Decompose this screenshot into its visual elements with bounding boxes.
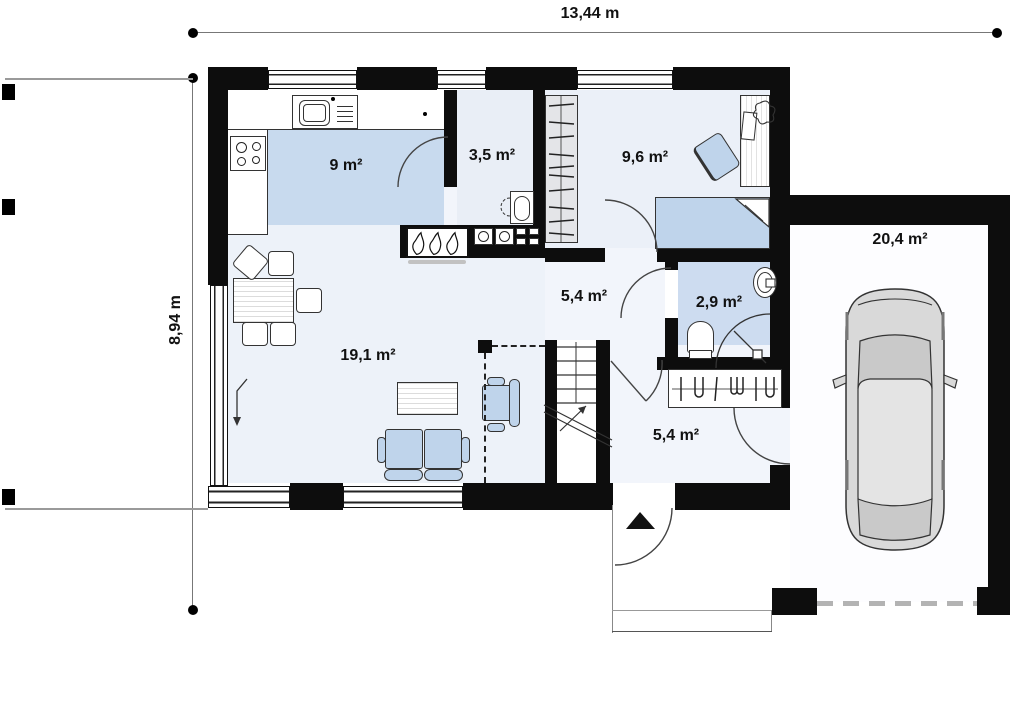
- living-room-window-left: [210, 285, 228, 486]
- sofa-cushion: [385, 429, 423, 469]
- stove-burner: [237, 157, 246, 166]
- sink-bowl-inner: [303, 104, 326, 122]
- dimension-dot: [188, 28, 198, 38]
- wall-segment: [665, 318, 678, 360]
- terrace-post: [2, 199, 15, 215]
- garage-floor: [790, 225, 988, 602]
- stove-burner: [252, 142, 261, 151]
- armchair-back: [509, 379, 520, 427]
- sofa-backrest: [424, 469, 463, 481]
- room-label-bedroom: 9,6 m²: [605, 148, 685, 168]
- room-label-utility: 3,5 m²: [452, 146, 532, 166]
- faucet-dot: [331, 97, 335, 101]
- wall-segment: [290, 483, 343, 510]
- dining-table: [233, 278, 294, 323]
- stove-burner: [252, 156, 260, 164]
- wall-segment: [533, 90, 545, 243]
- wall-segment: [772, 588, 817, 615]
- coffee-table: [397, 382, 458, 415]
- room-label-living-room: 19,1 m²: [328, 346, 408, 366]
- closet: [545, 95, 578, 243]
- dimension-dot: [992, 28, 1002, 38]
- stairs-wall: [596, 340, 610, 483]
- terrace-edge-top: [5, 78, 193, 80]
- armchair-armrest: [487, 423, 505, 432]
- vent-grid: [529, 228, 539, 235]
- floor-plan: 13,44 m 8,94 m: [0, 0, 1024, 717]
- porch-edge-left: [612, 505, 613, 633]
- kitchen-window: [268, 70, 357, 89]
- room-label-hall: 5,4 m²: [544, 287, 624, 307]
- wall-segment: [770, 465, 790, 510]
- dimension-width-label: 13,44 m: [520, 4, 660, 24]
- sink-drainer-line: [337, 106, 353, 107]
- dining-chair: [296, 288, 322, 313]
- sink-drainer-line: [337, 121, 353, 122]
- wall-segment: [444, 90, 457, 187]
- dashed-marker-v: [484, 353, 486, 483]
- wall-segment: [463, 483, 613, 510]
- porch-edge-right: [771, 610, 772, 631]
- terrace-post: [2, 84, 15, 100]
- armchair-seat: [482, 385, 512, 421]
- counter-dot: [423, 112, 427, 116]
- desk-keyboard: [741, 111, 758, 140]
- stairs-floor: [557, 340, 596, 483]
- desk: [740, 95, 770, 187]
- sofa-backrest: [384, 469, 423, 481]
- water-heater-tank: [514, 196, 530, 221]
- sink-drainer-line: [337, 111, 353, 112]
- stove-burner: [236, 142, 247, 153]
- washing-machine-drum: [499, 231, 510, 242]
- room-label-entry: 5,4 m²: [636, 426, 716, 446]
- sink-drainer-line: [337, 116, 353, 117]
- wall-segment: [208, 67, 228, 285]
- washing-machine-drum: [478, 231, 489, 242]
- toilet-tank: [689, 350, 712, 359]
- vent-grid: [529, 238, 539, 245]
- wall-segment: [486, 67, 577, 90]
- garage-door-dashed: [817, 601, 977, 606]
- armchair-armrest: [487, 377, 505, 386]
- room-label-garage: 20,4 m²: [860, 230, 940, 250]
- toilet-bowl: [687, 321, 714, 353]
- dimension-dot: [188, 605, 198, 615]
- fireplace: [406, 227, 469, 258]
- fireplace-hearth: [408, 260, 466, 264]
- stairs-wall: [545, 340, 557, 483]
- dining-chair: [270, 322, 296, 346]
- dashed-marker-h: [492, 345, 545, 347]
- entrance-door-arc: [615, 508, 672, 565]
- wall-segment: [657, 248, 790, 262]
- wall-segment: [977, 587, 1010, 615]
- living-room-corner-window: [208, 486, 290, 508]
- wall-segment: [665, 262, 678, 270]
- porch-edge-bottom: [612, 631, 772, 632]
- bathroom-sink-inner: [757, 272, 773, 293]
- dimension-line-left: [192, 78, 193, 610]
- sofa-armrest: [461, 437, 470, 463]
- wall-segment: [545, 248, 605, 262]
- wall-segment: [357, 67, 437, 90]
- sofa-armrest: [377, 437, 386, 463]
- dining-chair: [242, 322, 268, 346]
- kitchen-floor: [268, 130, 444, 225]
- wall-segment: [770, 195, 1010, 225]
- kitchen-door-gap: [444, 187, 457, 225]
- wall-segment: [988, 225, 1010, 587]
- dimension-height-label: 8,94 m: [166, 277, 186, 363]
- bed: [655, 197, 770, 249]
- porch-step-line: [612, 610, 772, 611]
- dimension-line-top: [193, 32, 997, 33]
- vent-grid: [516, 238, 526, 245]
- vent-grid: [516, 228, 526, 235]
- wall-segment: [770, 67, 790, 195]
- entry-wardrobe: [668, 369, 782, 408]
- terrace-edge-bottom: [5, 508, 208, 510]
- hall-post: [478, 340, 492, 353]
- terrace-post: [2, 489, 15, 505]
- room-label-kitchen: 9 m²: [306, 156, 386, 176]
- bedroom-window: [577, 70, 673, 89]
- utility-window: [437, 70, 486, 89]
- stove: [230, 136, 266, 171]
- sofa-cushion: [424, 429, 462, 469]
- dining-chair: [268, 251, 294, 276]
- bedroom-door-gap: [605, 248, 657, 262]
- entrance-marker-icon: [626, 512, 655, 529]
- living-room-window-bottom: [343, 486, 463, 508]
- room-label-bathroom: 2,9 m²: [679, 293, 759, 313]
